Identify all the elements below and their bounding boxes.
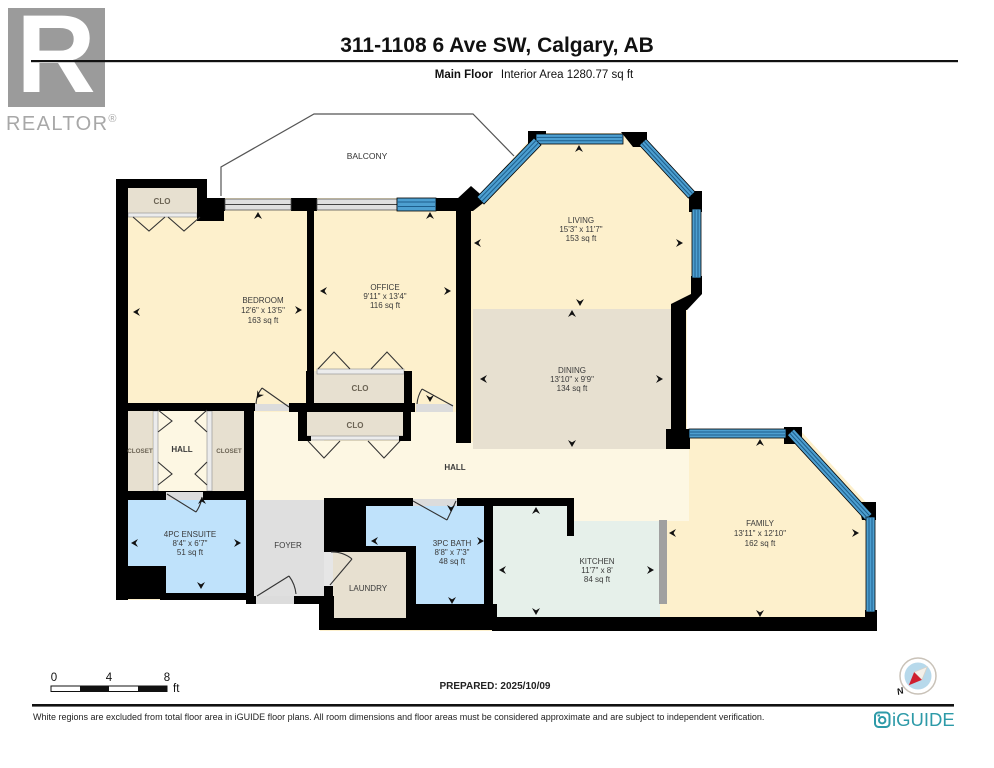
svg-text:116 sq ft: 116 sq ft xyxy=(370,301,401,310)
svg-text:KITCHEN: KITCHEN xyxy=(579,557,614,566)
svg-text:HALL: HALL xyxy=(171,445,192,454)
svg-text:Main FloorInterior Area 1280.7: Main FloorInterior Area 1280.77 sq ft xyxy=(435,69,634,81)
svg-text:0: 0 xyxy=(51,672,57,684)
svg-text:8'8" x 7'3": 8'8" x 7'3" xyxy=(435,548,470,557)
svg-text:CLOSET: CLOSET xyxy=(216,448,242,455)
svg-text:8'4" x 6'7": 8'4" x 6'7" xyxy=(173,539,208,548)
svg-text:134 sq ft: 134 sq ft xyxy=(557,384,588,393)
svg-text:REALTOR®: REALTOR® xyxy=(6,113,118,135)
svg-text:White regions are excluded fro: White regions are excluded from total fl… xyxy=(33,712,764,722)
svg-text:153 sq ft: 153 sq ft xyxy=(566,234,597,243)
svg-text:311-1108 6 Ave SW, Calgary, AB: 311-1108 6 Ave SW, Calgary, AB xyxy=(340,34,654,57)
svg-text:DINING: DINING xyxy=(558,366,586,375)
svg-text:R: R xyxy=(16,0,95,116)
svg-text:PREPARED: 2025/10/09: PREPARED: 2025/10/09 xyxy=(440,681,551,692)
svg-text:11'7" x 8': 11'7" x 8' xyxy=(581,566,613,575)
svg-text:LAUNDRY: LAUNDRY xyxy=(349,584,388,593)
svg-text:162 sq ft: 162 sq ft xyxy=(745,539,776,548)
svg-text:HALL: HALL xyxy=(444,463,465,472)
svg-text:ft: ft xyxy=(173,683,180,695)
svg-text:iGUIDE: iGUIDE xyxy=(892,709,955,730)
svg-text:FOYER: FOYER xyxy=(274,541,302,550)
svg-text:CLO: CLO xyxy=(352,384,369,393)
svg-text:FAMILY: FAMILY xyxy=(746,519,775,528)
svg-text:4: 4 xyxy=(106,672,113,684)
svg-text:BEDROOM: BEDROOM xyxy=(242,296,284,305)
svg-text:8: 8 xyxy=(164,672,170,684)
svg-text:13'10" x 9'9": 13'10" x 9'9" xyxy=(550,375,594,384)
svg-text:9'11" x 13'4": 9'11" x 13'4" xyxy=(363,292,406,301)
svg-text:13'11" x 12'10": 13'11" x 12'10" xyxy=(734,529,786,538)
svg-text:LIVING: LIVING xyxy=(568,216,594,225)
svg-text:3PC BATH: 3PC BATH xyxy=(433,539,472,548)
svg-text:4PC ENSUITE: 4PC ENSUITE xyxy=(164,530,216,539)
svg-text:BALCONY: BALCONY xyxy=(347,151,388,161)
svg-text:CLOSET: CLOSET xyxy=(127,448,153,455)
svg-text:CLO: CLO xyxy=(154,197,171,206)
svg-text:CLO: CLO xyxy=(347,421,364,430)
svg-text:163 sq ft: 163 sq ft xyxy=(248,316,279,325)
svg-text:15'3" x 11'7": 15'3" x 11'7" xyxy=(559,225,602,234)
svg-text:51 sq ft: 51 sq ft xyxy=(177,548,204,557)
svg-text:84 sq ft: 84 sq ft xyxy=(584,575,611,584)
svg-text:48 sq ft: 48 sq ft xyxy=(439,557,466,566)
svg-text:OFFICE: OFFICE xyxy=(370,283,399,292)
svg-text:12'6" x 13'5": 12'6" x 13'5" xyxy=(241,306,285,315)
